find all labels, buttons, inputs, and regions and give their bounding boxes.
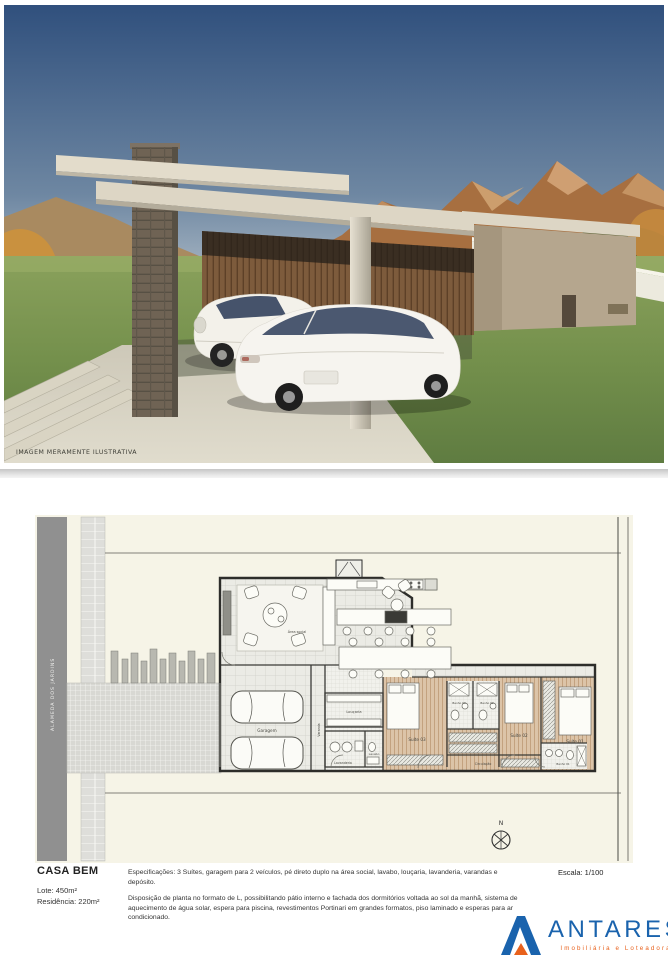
label-circulacao: Circulação xyxy=(475,762,492,766)
antares-wordmark: ANTARES xyxy=(548,918,668,942)
hero-caption: IMAGEM MERAMENTE ILUSTRATIVA xyxy=(16,449,137,456)
street-label: ALAMEDA DOS JARDINS xyxy=(50,658,56,731)
label-lavanderia: Lavanderia xyxy=(334,761,352,765)
side-window xyxy=(608,304,628,314)
label-loucaria: Louçaria xyxy=(346,710,361,714)
section-divider xyxy=(0,469,668,478)
floor-plan: ALAMEDA DOS JARDINS xyxy=(35,515,633,863)
label-suite1: Suíte 01 xyxy=(566,739,584,744)
house-render-image: IMAGEM MERAMENTE ILUSTRATIVA xyxy=(4,5,664,463)
spec-paragraph-1: Especificações: 3 Suítes, garagem para 2… xyxy=(128,868,526,887)
antares-logo: ANTARES Imobiliária e Loteadora xyxy=(498,910,660,960)
scale-note: Escala: 1/100 xyxy=(558,868,638,877)
side-door xyxy=(562,295,576,327)
label-suite2: Suíte 02 xyxy=(510,733,528,738)
entry-portico xyxy=(336,560,362,578)
project-title: CASA BEM xyxy=(37,865,100,877)
project-info: CASA BEM Lote: 450m² Residência: 220m² xyxy=(37,865,100,908)
label-banho3: Banho 03 xyxy=(452,701,466,705)
label-suite3: Suíte 03 xyxy=(408,737,426,742)
antares-logo-icon xyxy=(498,913,542,957)
label-garagem: Garagem xyxy=(257,728,276,733)
residence-area: Residência: 220m² xyxy=(37,896,100,907)
label-banho2: Banho 02 xyxy=(480,701,494,705)
living-furniture xyxy=(223,585,335,651)
label-area-social: Área social xyxy=(288,629,307,634)
spec-paragraph-2: Disposição de planta no formato de L, po… xyxy=(128,894,526,923)
specifications: Especificações: 3 Suítes, garagem para 2… xyxy=(128,868,526,930)
label-banho1: Banho 01 xyxy=(556,762,570,766)
compass-north-label: N xyxy=(499,820,504,827)
label-varanda: Varanda xyxy=(317,723,321,736)
driveway-paving xyxy=(67,683,221,773)
antares-tagline: Imobiliária e Loteadora xyxy=(560,945,668,952)
label-lavabo: Lavabo xyxy=(369,752,380,756)
lot-area: Lote: 450m² xyxy=(37,885,100,896)
